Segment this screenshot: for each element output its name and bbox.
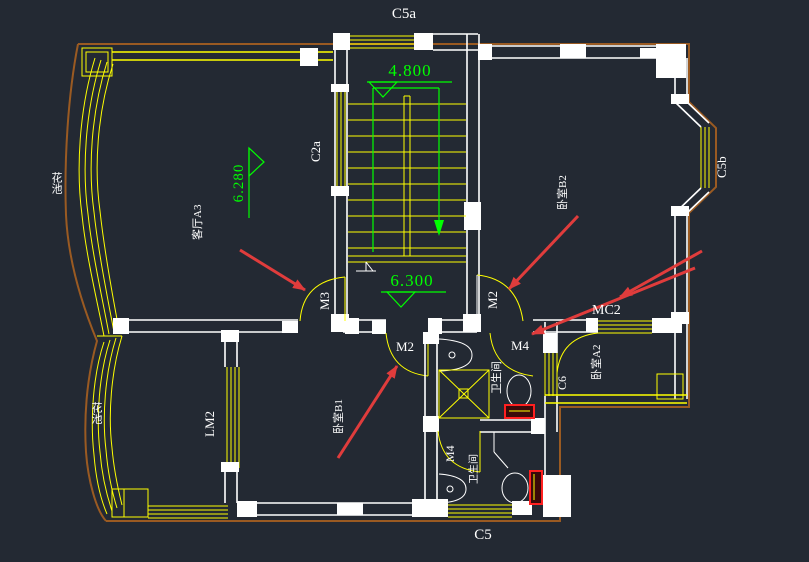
toilet-lower [502,471,542,504]
window-label-mc2: MC2 [592,303,621,318]
room-label-bedroom-bottom: 卧室B1 [331,399,345,434]
door-label-m2-lower: M2 [396,339,414,354]
toilet-upper [505,375,534,418]
label-flower-bed-upper: 花池 [50,172,63,194]
door-label-m4-lower: M4 [443,445,457,462]
shower [439,370,489,418]
level-value-living: 6.280 [231,164,247,203]
level-annotation-hall: 6.300 [381,271,446,307]
sink-lower [439,474,466,503]
arrow-to-m2-lower [338,366,397,458]
right-wall [671,58,689,324]
window-mc2-assembly [598,318,682,333]
left-bay-window-upper [79,58,122,336]
door-label-m2-upper: M2 [485,291,500,309]
bedroom-bottom-walls [148,330,439,518]
bay-window-c5b [675,102,709,213]
level-value-upper: 4.800 [388,61,431,80]
flower-bed-corner-box-top [82,48,112,76]
cad-canvas[interactable]: 4.800 6.300 6.280 C5a C2a C5b C5 C6 MC2 … [0,0,809,562]
room-label-bathroom-upper: 卫生间 [489,361,503,394]
callout-arrows [240,216,702,458]
left-bay-window-lower [92,336,122,514]
level-value-hall: 6.300 [390,271,433,290]
label-flower-bed-lower: 花池 [90,402,103,424]
room-label-bedroom-small: 卧室A2 [589,345,603,380]
window-label-c5b: C5b [714,156,729,178]
door-label-m3: M3 [317,292,332,310]
window-label-c6: C6 [555,376,569,390]
sink-upper [439,339,472,371]
stair-handrail-direction-arrow [373,88,444,252]
window-label-c2a: C2a [308,141,323,162]
arrow-to-m2-upper [509,216,578,289]
living-room-top-wall [112,48,333,66]
stair-top-wall-window-c5a [333,33,478,50]
door-label-m4-upper: M4 [511,338,530,353]
room-label-bathroom-lower: 卫生间 [467,454,480,484]
arrow-to-m3 [240,250,305,290]
floor-plan-drawing: 4.800 6.300 6.280 C5a C2a C5b C5 C6 MC2 … [0,0,809,562]
window-label-c5: C5 [474,527,492,543]
stair-start-tick [356,262,376,271]
level-annotation-living: 6.280 [231,148,264,218]
room-label-bedroom-right: 卧室B2 [555,175,569,210]
window-label-c5a: C5a [392,6,417,22]
flower-bed-corner-box-bottom [112,489,148,517]
room-label-living: 客厅A3 [190,204,204,240]
stair-treads [348,96,466,262]
bedroom-right-top-wall [478,44,686,78]
window-label-lm2: LM2 [202,411,217,437]
